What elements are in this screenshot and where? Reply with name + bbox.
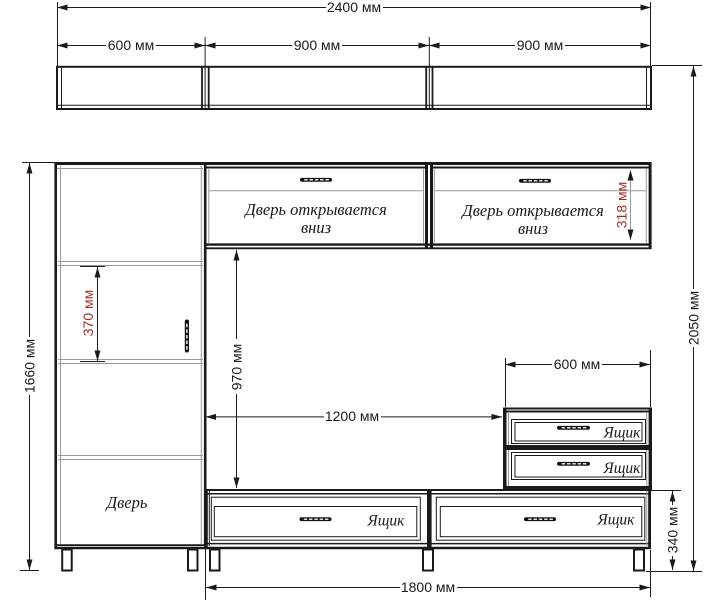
svg-text:600 мм: 600 мм <box>108 37 155 53</box>
svg-text:1800 мм: 1800 мм <box>401 579 455 595</box>
svg-text:вниз: вниз <box>518 219 548 238</box>
svg-text:Дверь открывается: Дверь открывается <box>460 201 604 220</box>
svg-text:Дверь открывается: Дверь открывается <box>243 200 387 219</box>
svg-text:600 мм: 600 мм <box>554 356 601 372</box>
svg-text:2050 мм: 2050 мм <box>686 291 702 345</box>
svg-text:1660 мм: 1660 мм <box>22 339 38 393</box>
svg-text:970 мм: 970 мм <box>229 344 245 391</box>
svg-text:318 мм: 318 мм <box>614 182 630 229</box>
svg-text:Ящик: Ящик <box>603 460 642 477</box>
svg-text:900 мм: 900 мм <box>294 37 341 53</box>
svg-text:370 мм: 370 мм <box>80 290 96 337</box>
svg-text:2400 мм: 2400 мм <box>327 0 381 15</box>
svg-text:1200 мм: 1200 мм <box>325 408 379 424</box>
svg-text:340 мм: 340 мм <box>665 507 681 554</box>
svg-text:Ящик: Ящик <box>597 512 636 529</box>
svg-text:вниз: вниз <box>301 218 331 237</box>
svg-text:Дверь: Дверь <box>105 493 148 512</box>
svg-text:Ящик: Ящик <box>367 513 406 530</box>
svg-text:900 мм: 900 мм <box>517 37 564 53</box>
svg-text:Ящик: Ящик <box>603 425 642 442</box>
